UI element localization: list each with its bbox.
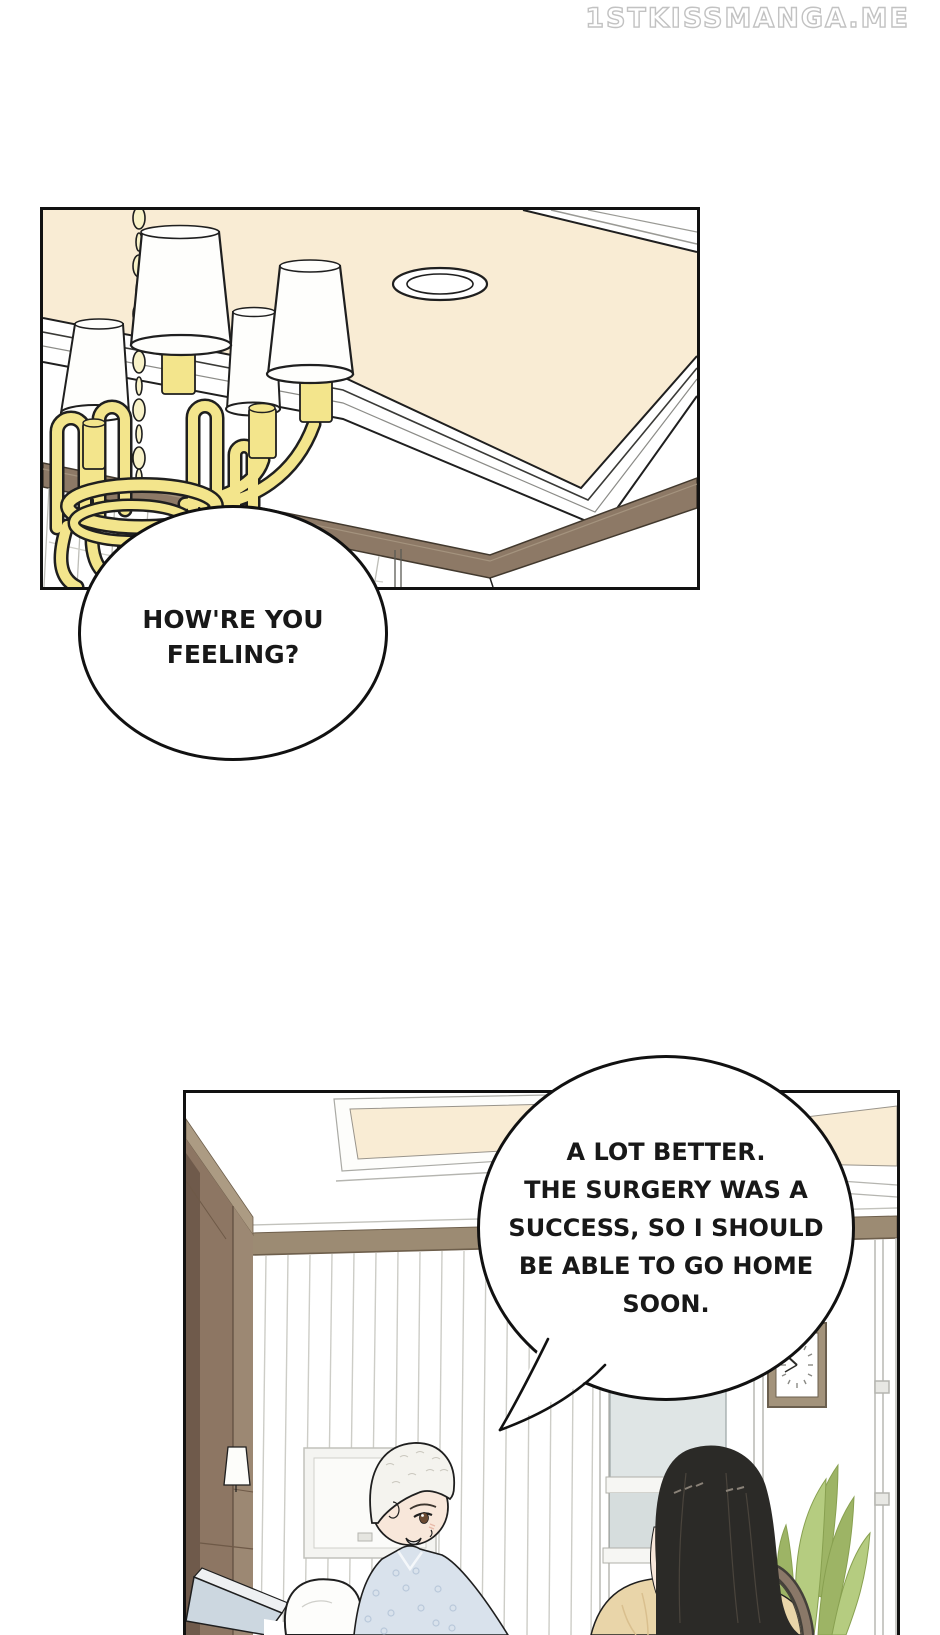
speech-bubble-2-tail	[455, 1325, 630, 1440]
speech-bubble-1: HOW'RE YOU FEELING?	[78, 505, 388, 761]
lamp-shade-front-tall	[131, 226, 231, 356]
speech-line: THE SURGERY WAS A	[524, 1171, 808, 1209]
recessed-light	[393, 268, 487, 300]
manga-page: { "watermark": { "text": "1STKISSMANGA.M…	[0, 0, 940, 1635]
speech-line: SUCCESS, SO I SHOULD	[508, 1209, 823, 1247]
eye-iris	[420, 1513, 429, 1524]
speech-line: SOON.	[622, 1285, 709, 1323]
site-watermark: 1STKISSMANGA.ME	[585, 3, 910, 34]
pillow	[285, 1579, 362, 1635]
speech-line: HOW'RE YOU	[142, 602, 323, 637]
lamp-shade-front-right	[267, 260, 353, 383]
wall-lamp	[224, 1447, 250, 1492]
speech-line: BE ABLE TO GO HOME	[519, 1247, 813, 1285]
speech-line: FEELING?	[167, 637, 299, 672]
speech-line: A LOT BETTER.	[567, 1133, 766, 1171]
